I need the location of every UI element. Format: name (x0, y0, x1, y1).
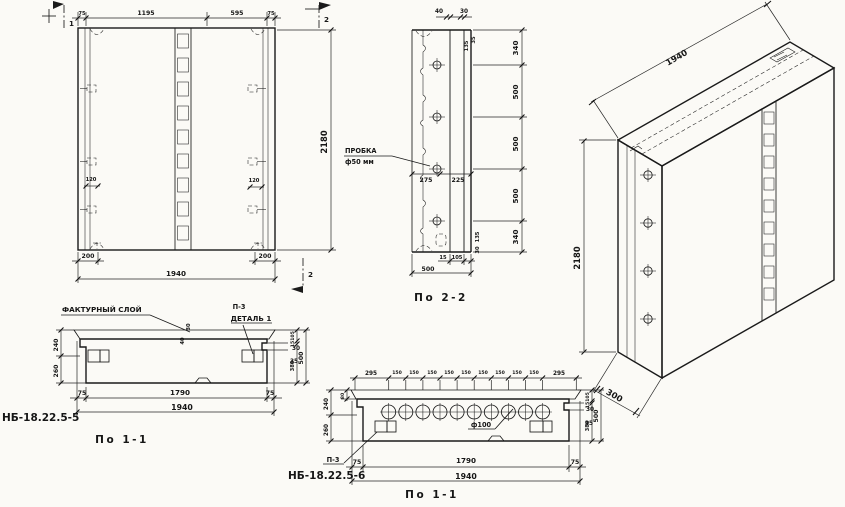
plug-label-line1: ПРОБКА (345, 147, 377, 155)
dim-275: 275 (420, 177, 433, 184)
dim-500-b: 500 (511, 136, 520, 151)
dim-1790-a: 1790 (170, 388, 190, 397)
iso-plugs (640, 168, 656, 326)
iso-dims: 1940 2180 300 (572, 1, 790, 418)
dim-500-a-total: 500 (298, 351, 305, 365)
dim-120-right: 120 (249, 178, 260, 184)
dim-15-a: 15 (290, 341, 296, 347)
detail-ref-a: П-3 (233, 303, 246, 311)
dim-chain-top: 75 1195 595 75 (72, 10, 281, 26)
dim-105: 105 (452, 255, 463, 261)
dim-120-left: 120 (86, 177, 97, 183)
plug-label: ПРОБКА ф50 мм (344, 147, 430, 166)
dim-150: 150 (461, 370, 471, 376)
section-flag-2-bottom: 2 (291, 258, 313, 293)
facture-callout: ФАКТУРНЫЙ СЛОЙ (61, 305, 190, 332)
iso-dim-width: 1940 (664, 47, 689, 67)
facture-label: ФАКТУРНЫЙ СЛОЙ (62, 305, 142, 314)
dim-150: 150 (495, 370, 505, 376)
section-1-1-a: ФАКТУРНЫЙ СЛОЙ П-3 ДЕТАЛЬ 1 240 260 30 4… (2, 303, 310, 446)
dim-chain-right: 340 500 500 500 340 (473, 28, 527, 255)
dim-75-b1: 75 (353, 459, 362, 466)
dim-240-a: 240 (53, 338, 60, 352)
dim-1940-b: 1940 (455, 472, 477, 481)
dim-1940: 1940 (166, 269, 186, 278)
dim-595: 595 (231, 10, 244, 17)
section-2-2-title: По 2-2 (414, 292, 468, 304)
detail-label: ДЕТАЛЬ 1 (231, 314, 272, 323)
facture-layer-b (351, 390, 581, 399)
section-1-1-a-title: По 1-1 (95, 434, 149, 446)
dim-chain-bottom: 200 200 1940 (72, 252, 281, 283)
dim-105-a: 105 (290, 331, 296, 341)
dim-right-a: 30 35 105 15 380 500 (267, 328, 310, 386)
joint-channel (175, 28, 191, 250)
anchor-marks (80, 85, 266, 213)
dim-1195: 1195 (137, 10, 154, 17)
dim-15: 15 (439, 255, 447, 261)
section-flag-2-top: 2 (305, 2, 331, 28)
dim-1940-a: 1940 (171, 403, 193, 412)
dim-top-b: 295 150 150 150 150 150 150 150 150 150 … (350, 370, 582, 390)
void-circles (380, 403, 552, 421)
dim-380-b: 380 (585, 420, 591, 431)
dim-30: 30 (460, 9, 468, 15)
rot-40-a: 40 (180, 337, 186, 345)
rot-30-a: 30 (186, 323, 192, 331)
rot-30-bottom: 30 (475, 246, 481, 254)
section-1-1-b: 295 150 150 150 150 150 150 150 150 150 … (288, 370, 604, 501)
dim-500-b-total: 500 (593, 409, 600, 423)
dim-chain-bottom22: 15 105 500 135 30 (410, 231, 482, 277)
front-view: 120 120 75 1195 595 75 2180 (42, 1, 336, 293)
dim-2180: 2180 (319, 130, 329, 153)
dim-75-a1: 75 (78, 390, 87, 397)
dim-left-b: 240 80 260 (324, 388, 363, 444)
dim-225: 225 (452, 177, 465, 184)
iso-insulation-strip (627, 145, 635, 362)
blueprint-page: 120 120 75 1195 595 75 2180 (0, 0, 845, 507)
dim-150: 150 (409, 370, 419, 376)
dim-295-l: 295 (365, 371, 377, 377)
plug-holes (429, 58, 445, 228)
dim-75-b2: 75 (571, 459, 580, 466)
insulation-layer (450, 30, 464, 252)
void-label: ф100 (471, 421, 492, 429)
flag-1-label: 1 (69, 19, 74, 28)
detail-callout-a: П-3 ДЕТАЛЬ 1 (231, 303, 272, 354)
dim-200-right: 200 (259, 253, 273, 260)
dim-240-b: 240 (324, 398, 330, 410)
dim-80-b: 80 (340, 393, 346, 399)
dim-40: 40 (435, 9, 443, 15)
body-a (80, 339, 267, 383)
dim-bottom-a: 75 1790 75 1940 (70, 341, 282, 416)
rot-135-bottom: 135 (475, 231, 481, 242)
section-flag-1: 1 (42, 1, 74, 28)
section-2-2: 40 30 135 35 340 500 500 500 340 ПРОБКА … (344, 9, 527, 304)
dim-15-b: 15 (585, 402, 591, 408)
dim-150: 150 (529, 370, 539, 376)
dim-150: 150 (444, 370, 454, 376)
dim-right-b: 30 35 105 15 380 500 (569, 388, 604, 444)
iso-lifting-slot (770, 48, 795, 62)
dim-105-b: 105 (585, 392, 591, 402)
iso-side-face (618, 140, 662, 378)
dim-120: 120 120 (84, 177, 265, 190)
iso-top-face (618, 42, 834, 166)
iso-front-face (662, 68, 834, 378)
broken-edge (421, 30, 426, 252)
dim-75-a: 75 (78, 11, 86, 17)
dim-295-r: 295 (553, 371, 565, 377)
dim-500-total: 500 (422, 266, 436, 273)
mark-a: НБ-18.22.5-5 (2, 412, 79, 424)
dim-200-left: 200 (82, 253, 96, 260)
dim-260-a: 260 (53, 364, 60, 378)
dim-380-a: 380 (290, 360, 296, 371)
dim-500-c: 500 (511, 188, 520, 203)
iso-view: 1940 2180 300 (572, 1, 834, 418)
dim-1790-b: 1790 (456, 456, 476, 465)
dim-260-b: 260 (324, 424, 330, 436)
dim-left-a: 240 260 (53, 328, 86, 386)
dim-75-b: 75 (267, 11, 275, 17)
dim-height: 2180 (277, 28, 336, 253)
plug-label-line2: ф50 мм (345, 158, 374, 166)
dim-500-a: 500 (511, 84, 520, 99)
rot-135-top: 135 (464, 40, 470, 51)
mark-b: НБ-18.22.5-6 (288, 470, 365, 482)
flag-2-top-label: 2 (324, 15, 329, 24)
dim-150: 150 (392, 370, 402, 376)
detail-ref-b: П-3 (327, 456, 340, 464)
dim-150: 150 (478, 370, 488, 376)
dim-75-a2: 75 (266, 390, 275, 397)
dim-150: 150 (427, 370, 437, 376)
flag-2-bottom-label: 2 (308, 270, 313, 279)
section-1-1-b-title: По 1-1 (405, 489, 459, 501)
iso-dim-height: 2180 (572, 246, 582, 269)
iso-joint-channel (762, 101, 776, 321)
dim-340-top: 340 (511, 40, 520, 55)
rot-35-top: 35 (471, 36, 477, 44)
technical-drawing: 120 120 75 1195 595 75 2180 (0, 0, 845, 507)
dim-340-bottom: 340 (511, 229, 520, 244)
dim-150: 150 (512, 370, 522, 376)
